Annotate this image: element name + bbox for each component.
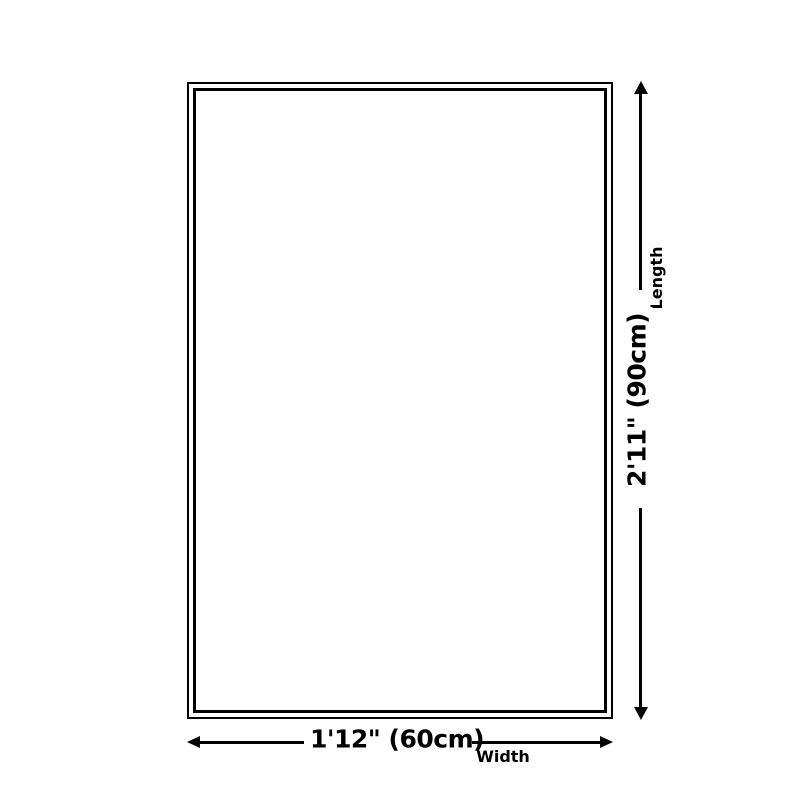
length-axis-label: Length: [648, 247, 666, 310]
product-outline-outer: [187, 82, 613, 719]
arrow-right-icon: [600, 736, 613, 748]
length-arrow-line-upper: [639, 94, 642, 290]
width-value: 1'12" (60cm): [304, 726, 490, 755]
dimension-diagram: Length 2'11" (90cm) 1'12" (60cm) Width: [0, 0, 800, 800]
arrow-up-icon: [634, 81, 648, 94]
product-outline-inner: [193, 88, 607, 713]
width-axis-label: Width: [476, 748, 530, 766]
arrow-down-icon: [634, 707, 648, 720]
width-arrow-line-right: [472, 741, 601, 744]
width-arrow-line-left: [199, 741, 314, 744]
length-value: 2'11" (90cm): [624, 307, 653, 493]
length-arrow-line-lower: [639, 508, 642, 708]
